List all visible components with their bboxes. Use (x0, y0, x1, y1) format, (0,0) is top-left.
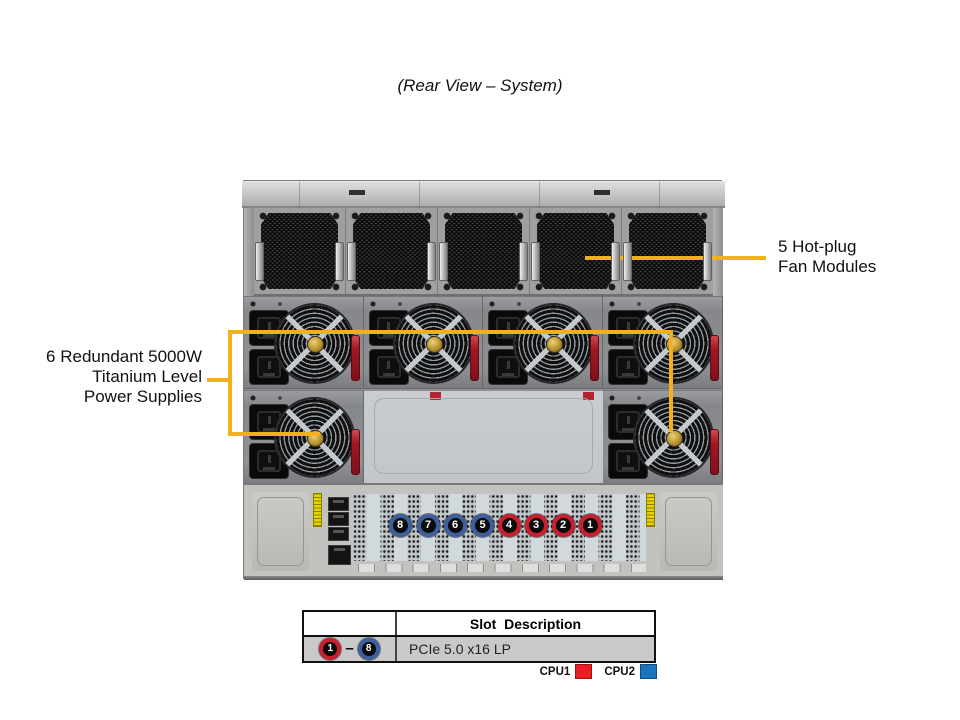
fan-module-1 (254, 208, 346, 294)
psu-row-bottom (244, 390, 723, 483)
server-rear-illustration: 8 7 6 5 4 3 2 1 (243, 180, 722, 579)
psu-callout: 6 Redundant 5000W Titanium Level Power S… (38, 347, 202, 407)
fan-modules-callout: 5 Hot-plug Fan Modules (778, 237, 876, 277)
fan-module-3 (438, 208, 530, 294)
fan-module-2 (346, 208, 438, 294)
pcie-slot-section: 8 7 6 5 4 3 2 1 (244, 483, 723, 576)
fan-callout-line1: 5 Hot-plug (778, 237, 876, 257)
fan-mesh (537, 213, 614, 289)
slot-marker-8: 8 (389, 514, 412, 537)
psu-row-top (244, 296, 723, 389)
cpu2-label: CPU2 (604, 666, 635, 678)
callout-line-psu-bottom (228, 432, 320, 436)
ethernet-port (328, 527, 349, 541)
fan-mesh (629, 213, 706, 289)
fan-module-5 (622, 208, 713, 294)
page-title: (Rear View – System) (0, 76, 960, 96)
table-header-description: Slot Description (397, 612, 654, 635)
psu-module-1 (244, 296, 364, 388)
table-data-row: 1 – 8 PCIe 5.0 x16 LP (304, 635, 654, 661)
blank-panel-left (252, 492, 309, 571)
ethernet-port (328, 545, 351, 565)
slot-marker-1: 1 (579, 514, 602, 537)
blank-panel-right (660, 492, 717, 571)
psu-release-latch (351, 335, 360, 381)
slot-marker-7: 7 (417, 514, 440, 537)
power-supply-section (244, 296, 723, 483)
chassis-rail-left (244, 208, 254, 296)
callout-line-psu-vertical (228, 330, 232, 436)
table-slot-range-cell: 1 – 8 (304, 637, 397, 661)
psu-module-2 (364, 296, 484, 388)
psu-fan (633, 303, 714, 384)
psu-release-latch (710, 335, 719, 381)
psu-callout-line2: Titanium Level (38, 367, 202, 387)
psu-module-6 (603, 390, 723, 483)
slot-marker-6: 6 (444, 514, 467, 537)
psu-module-3 (483, 296, 603, 388)
ethernet-port (328, 497, 349, 511)
psu-release-latch (351, 429, 360, 475)
cpu-legend: CPU1 CPU2 (302, 664, 657, 679)
psu-release-latch (470, 335, 479, 381)
slot-screw-row (353, 564, 646, 572)
psu-fan (633, 397, 714, 478)
callout-line-psu-text (207, 378, 230, 382)
slot-description-table: Slot Description 1 – 8 PCIe 5.0 x16 LP (302, 610, 656, 663)
psu-fan (393, 303, 474, 384)
warning-label-right (646, 493, 655, 527)
fan-mesh (261, 213, 338, 289)
fan-mesh (353, 213, 430, 289)
psu-module-4 (603, 296, 723, 388)
psu-release-latch (590, 335, 599, 381)
chassis-lid (242, 181, 725, 208)
fan-callout-line2: Fan Modules (778, 257, 876, 277)
slot-range-end-marker: 8 (358, 638, 380, 660)
cpu1-color-swatch (575, 664, 592, 679)
fan-module-row (244, 208, 723, 296)
table-header-slot-cell (304, 612, 397, 635)
fan-modules (254, 208, 713, 294)
warning-label-left (313, 493, 322, 527)
slot-marker-2: 2 (552, 514, 575, 537)
table-header-row: Slot Description (304, 612, 654, 635)
cpu1-label: CPU1 (540, 666, 571, 678)
callout-line-psu-right-vertical (669, 330, 673, 432)
psu-fan (274, 397, 355, 478)
blank-filler-panel (364, 390, 604, 483)
table-description-cell: PCIe 5.0 x16 LP (397, 637, 654, 661)
psu-callout-line1: 6 Redundant 5000W (38, 347, 202, 367)
psu-callout-line3: Power Supplies (38, 387, 202, 407)
slot-marker-3: 3 (525, 514, 548, 537)
slot-marker-4: 4 (498, 514, 521, 537)
callout-line-psu-horizontal (228, 330, 673, 334)
chassis-base (244, 576, 723, 580)
cpu2-color-swatch (640, 664, 657, 679)
psu-fan (274, 303, 355, 384)
ethernet-port (328, 512, 349, 526)
page: (Rear View – System) (0, 0, 960, 720)
fan-mesh (445, 213, 522, 289)
chassis-rail-right (713, 208, 723, 296)
psu-fan (513, 303, 594, 384)
psu-release-latch (710, 429, 719, 475)
slot-marker-5: 5 (471, 514, 494, 537)
psu-module-5 (244, 390, 364, 483)
fan-module-4 (530, 208, 622, 294)
slot-range-start-marker: 1 (319, 638, 341, 660)
slot-range-dash: – (345, 638, 353, 660)
